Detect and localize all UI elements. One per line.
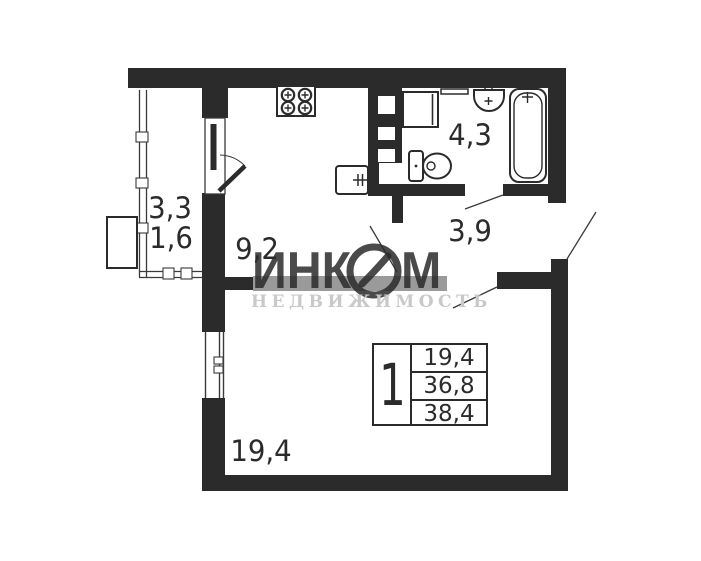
wall-left-low [202,398,225,475]
wall-kitchen-hall-stub [392,196,403,223]
bathroom-sink-icon [474,84,504,111]
rooms-count-value: 1 [379,356,406,414]
overall-area-cell: 38,4 [412,401,486,427]
balcony-area-label-1: 3,3 [147,194,193,223]
wall-top [128,68,566,88]
balcony-door [205,118,245,194]
washing-machine-icon [403,92,438,127]
wall-right-upper [548,88,566,203]
watermark-subtitle: НЕДВИЖИМОСТЬ [251,293,461,312]
kitchen-sink-icon [336,166,370,194]
living-room-window [206,332,224,398]
bathtub-icon [510,84,546,182]
apartment-info-table: 1 19,4 36,8 38,4 [372,343,488,426]
kitchen-area-label: 9,2 [234,235,280,264]
bathroom-door-line [465,195,503,209]
bathroom-area-label: 4,3 [447,121,493,150]
shelf-icon [441,89,468,94]
watermark-brand-right: М [401,245,441,297]
living-area-cell: 19,4 [412,345,486,373]
entrance-door-line [567,212,596,259]
living-room-area-label: 19,4 [230,437,293,466]
wall-left-mid [202,193,225,332]
wall-living-stub-right [497,272,553,289]
wall-bath-bottom-right [503,184,548,196]
wall-bath-bottom-left [393,184,465,196]
stove-icon [277,86,315,116]
floor-plan: ИНК М НЕДВИЖИМОСТЬ 3,3 1,6 9,2 4,3 3,9 1… [0,0,701,561]
wall-living-stub-left [225,277,253,290]
wall-bottom [202,475,568,491]
hallway-area-label: 3,9 [447,217,493,246]
wall-right-lower [551,259,568,491]
total-area-cell: 36,8 [412,373,486,401]
rooms-count-cell: 1 [374,345,412,424]
toilet-icon [409,151,451,181]
ac-unit [107,217,137,268]
wall-balcony-corner [202,88,228,118]
balcony-area-label-2: 1,6 [148,224,194,253]
